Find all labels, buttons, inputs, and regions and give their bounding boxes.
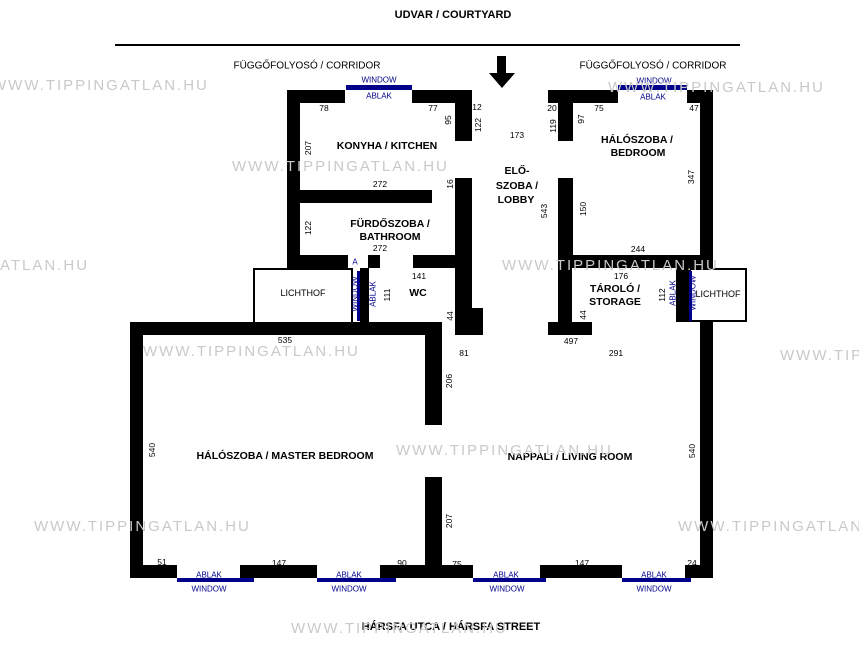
dimension-label: 47: [689, 103, 698, 113]
room-label-lobby: SZOBA /: [496, 180, 538, 192]
wall-segment: [425, 477, 442, 578]
dimension-label: 147: [575, 558, 589, 568]
dimension-label: 206: [444, 374, 454, 388]
room-label-bedroom: BEDROOM: [611, 147, 666, 159]
dimension-label: 347: [686, 170, 696, 184]
dimension-label: 244: [631, 244, 645, 254]
corridor-label-right: FÜGGŐFOLYOSÓ / CORRIDOR: [579, 61, 726, 72]
window-label-ablak: ABLAK: [669, 280, 678, 306]
wall-segment: [425, 335, 442, 425]
dimension-label: 122: [473, 118, 483, 132]
window-marker: [346, 85, 412, 90]
watermark: WWW.TIPPINGATLAN.HU: [143, 343, 360, 360]
wall-segment: [700, 90, 713, 268]
dimension-label: 540: [687, 444, 697, 458]
watermark: WWW.TIPPINGATLAN.HU: [678, 518, 859, 535]
wall-segment: [548, 322, 592, 335]
window-label-window: WINDOW: [331, 585, 366, 594]
dimension-label: 272: [373, 179, 387, 189]
room-label-storage: STORAGE: [589, 296, 641, 308]
dimension-label: 81: [459, 348, 468, 358]
dimension-label: 97: [576, 114, 586, 123]
dimension-label: 272: [373, 243, 387, 253]
window-label-ablak: ABLAK: [366, 92, 392, 101]
wall-segment: [455, 268, 472, 308]
room-label-storage: TÁROLÓ /: [590, 283, 640, 295]
dimension-label: 24: [687, 558, 696, 568]
dimension-label: 207: [444, 514, 454, 528]
dimension-label: 122: [303, 221, 313, 235]
wall-segment: [558, 178, 573, 255]
watermark: ATLAN.HU: [0, 257, 89, 274]
room-label-bathroom: FÜRDŐSZOBA /: [350, 218, 430, 230]
dimension-label: 44: [578, 310, 588, 319]
room-label-bedroom: HÁLÓSZOBA /: [601, 134, 673, 146]
room-label-lobby: ELŐ-: [504, 165, 529, 177]
window-label-window: WINDOW: [489, 585, 524, 594]
dimension-label: 44: [445, 311, 455, 320]
wall-segment: [130, 565, 177, 578]
dimension-label: 90: [397, 558, 406, 568]
corridor-label-left: FÜGGŐFOLYOSÓ / CORRIDOR: [233, 61, 380, 72]
room-label-lichthof-left: LICHTHOF: [281, 288, 326, 298]
window-label-ablak: ABLAK: [641, 571, 667, 580]
room-label-lichthof-right: LICHTHOF: [696, 289, 741, 299]
dimension-label: 112: [657, 288, 667, 302]
wall-segment: [300, 190, 432, 203]
dimension-label: 95: [443, 115, 453, 124]
dimension-label: 543: [539, 204, 549, 218]
dimension-label: 75: [452, 559, 461, 569]
wall-segment: [287, 90, 345, 103]
room-label-kitchen: KONYHA / KITCHEN: [337, 140, 438, 152]
wall-segment: [412, 90, 472, 103]
window-label-window: WINDOW: [636, 585, 671, 594]
wall-segment: [413, 255, 472, 268]
courtyard-label: UDVAR / COURTYARD: [395, 9, 512, 21]
watermark: WWW.TIPPINGATLAN.HU: [608, 79, 825, 96]
wall-segment: [455, 103, 472, 141]
dimension-label: 540: [147, 443, 157, 457]
wall-segment: [130, 335, 143, 578]
dimension-label: 497: [564, 336, 578, 346]
dimension-label: 77: [428, 103, 437, 113]
wall-segment: [558, 268, 572, 322]
wall-segment: [368, 255, 380, 268]
window-label-ablak: ABLAK: [493, 571, 519, 580]
watermark: WWW.TIPPINGATLAN.HU: [291, 620, 508, 637]
window-label-window: WINDOW: [361, 76, 396, 85]
wall-segment: [558, 103, 573, 141]
watermark: WWW.TIPPINGATLAN.HU: [232, 158, 449, 175]
room-label-wc: WC: [409, 287, 427, 299]
wall-segment: [287, 103, 300, 268]
watermark: WWW.TIPPINGATLAN.HU: [34, 518, 251, 535]
dimension-label: 51: [157, 557, 166, 567]
dimension-label: 111: [382, 289, 392, 302]
room-label-master-bedroom: HÁLÓSZOBA / MASTER BEDROOM: [197, 450, 374, 462]
dimension-label: 150: [578, 202, 588, 216]
floor-plan: UDVAR / COURTYARD FÜGGŐFOLYOSÓ / CORRIDO…: [0, 0, 859, 645]
dimension-label: 119: [548, 119, 558, 133]
watermark: WWW.TIPPINGATLAN.HU: [0, 77, 209, 94]
watermark: WWW.TIPPINGATLAN.HU: [502, 257, 719, 274]
watermark: WWW.TIPP: [780, 347, 859, 364]
dimension-label: 147: [272, 558, 286, 568]
entrance-arrow-shaft: [497, 56, 506, 74]
watermark: WWW.TIPPINGATLAN.HU: [396, 442, 613, 459]
window-label-window: WINDOW: [351, 276, 360, 311]
window-label-window: WINDOW: [191, 585, 226, 594]
dimension-label: 291: [609, 348, 623, 358]
wall-segment: [700, 322, 713, 578]
dimension-label: 16: [445, 179, 455, 188]
dimension-label: 173: [510, 130, 524, 140]
window-marker-a-label: A: [352, 258, 357, 267]
room-label-lobby: LOBBY: [498, 194, 535, 206]
entrance-arrow-head: [489, 73, 515, 88]
dimension-label: 78: [319, 103, 328, 113]
wall-segment: [676, 268, 689, 322]
window-label-ablak: ABLAK: [196, 571, 222, 580]
dimension-label: 207: [303, 141, 313, 155]
wall-segment: [455, 308, 483, 335]
wall-segment: [287, 255, 348, 268]
wall-segment: [130, 322, 442, 335]
dimension-label: 141: [412, 271, 426, 281]
courtyard-boundary-line: [115, 44, 740, 46]
window-label-ablak: ABLAK: [369, 281, 378, 307]
dimension-label: 12: [472, 102, 481, 112]
dimension-label: 75: [594, 103, 603, 113]
room-label-bathroom: BATHROOM: [359, 231, 420, 243]
window-label-ablak: ABLAK: [336, 571, 362, 580]
dimension-label: 20: [547, 103, 556, 113]
